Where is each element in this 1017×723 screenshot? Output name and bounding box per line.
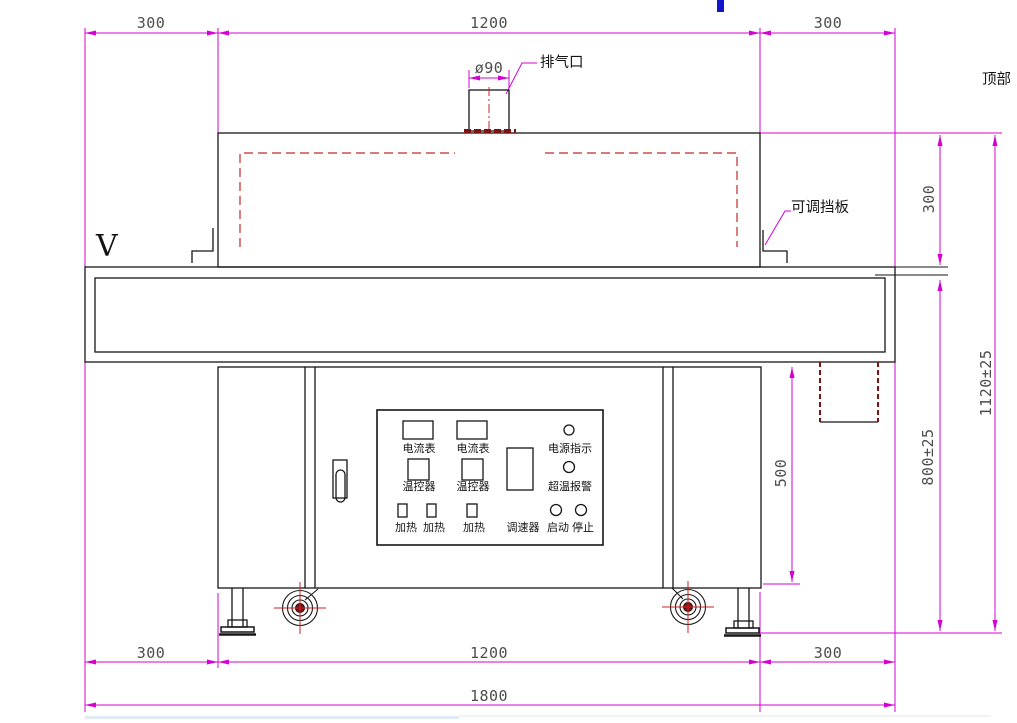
dim-top-left: 300: [137, 14, 166, 32]
overtemp-alarm-lamp: [564, 462, 575, 473]
left-foot-nut: [228, 620, 247, 627]
label-exhaust-port: 排气口: [540, 54, 584, 71]
right-caster-centerlines: [662, 581, 714, 633]
machine-structure: [85, 90, 948, 636]
label-temp-controller-1: 温控器: [403, 479, 436, 493]
dim-top-right: 300: [814, 14, 843, 32]
side-box-dashed-edges: [820, 362, 878, 422]
label-ammeter-2: 电流表: [457, 441, 490, 455]
panel-labels: 电流表 电流表 电源指示 温控器 温控器 超温报警 加热 加热 加热 调速器 启…: [395, 441, 594, 534]
label-heater-2: 加热: [423, 521, 445, 534]
leader-baffle: [765, 211, 791, 245]
label-power-indicator: 电源指示: [548, 441, 592, 455]
baffle-right: [763, 230, 787, 263]
blue-marker-top: [717, 0, 724, 12]
caster-crosshairs: [274, 581, 714, 634]
label-adjustable-baffle: 可调挡板: [791, 198, 849, 216]
start-button[interactable]: [551, 505, 562, 516]
cabinet-dividers: [305, 367, 673, 588]
label-stop: 停止: [572, 520, 594, 534]
left-caster-fork: [305, 589, 318, 600]
dim-total-height: 1120±25: [977, 350, 995, 417]
ammeter-1: [403, 421, 433, 439]
chamber-dash-left: [240, 153, 455, 247]
dim-work-height: 800±25: [919, 428, 937, 485]
cabinet: [218, 367, 761, 588]
right-foot-stem: [738, 588, 749, 628]
dim-top-center: 1200: [470, 14, 508, 32]
selection-band-bottom-left: [85, 716, 459, 719]
power-indicator-lamp: [564, 425, 574, 435]
left-foot-stem: [232, 588, 243, 627]
dim-bottom-total: 1800: [470, 687, 508, 705]
right-foot-pad: [726, 628, 759, 633]
conveyor-body: [85, 267, 895, 362]
speed-controller-unit[interactable]: [507, 448, 533, 490]
engineering-drawing-canvas: 300 1200 300 ø90 300 800±25 1120±25 500 …: [0, 0, 1017, 723]
label-speed-controller: 调速器: [507, 521, 540, 534]
left-foot-pad: [221, 627, 254, 632]
left-caster-centerlines: [274, 582, 326, 634]
dim-bottom-left: 300: [137, 644, 166, 662]
annotations: 排气口 可调挡板 顶部 V: [95, 54, 1011, 264]
label-heater-3: 加热: [463, 521, 485, 534]
label-start: 启动: [547, 521, 569, 534]
dim-cabinet-height: 500: [772, 459, 790, 488]
right-foot-nut: [734, 621, 753, 628]
dim-chimney-dia: ø90: [475, 59, 504, 77]
label-overtemp-alarm: 超温报警: [548, 479, 592, 493]
chamber-dash-right: [545, 153, 737, 247]
label-temp-controller-2: 温控器: [457, 479, 490, 493]
temp-controller-2[interactable]: [462, 459, 483, 480]
tunnel-oven-front-view: 300 1200 300 ø90 300 800±25 1120±25 500 …: [0, 0, 1017, 723]
heater-switch-3[interactable]: [467, 504, 477, 517]
temp-controller-1[interactable]: [408, 459, 429, 480]
label-top: 顶部: [982, 71, 1011, 88]
door-handle[interactable]: [336, 470, 345, 502]
stop-button[interactable]: [576, 505, 587, 516]
dim-bottom-right: 300: [814, 644, 843, 662]
dim-bottom-center: 1200: [470, 644, 508, 662]
dimension-lines: [85, 28, 1002, 712]
belt-ext-lines: [875, 267, 948, 275]
inner-chamber-dashed: [240, 153, 737, 247]
dimension-text: 300 1200 300 ø90 300 800±25 1120±25 500 …: [137, 14, 995, 705]
leader-exhaust: [506, 63, 537, 94]
heater-switch-2[interactable]: [427, 504, 436, 517]
label-view-v: V: [95, 229, 119, 264]
ammeter-2: [457, 421, 487, 439]
conveyor-belt: [95, 278, 885, 352]
heater-switch-1[interactable]: [398, 504, 407, 517]
label-ammeter-1: 电流表: [403, 441, 436, 455]
label-heater-1: 加热: [395, 521, 417, 534]
selection-band-bottom-right: [459, 715, 991, 717]
dim-hood-height: 300: [920, 185, 938, 214]
baffle-left: [192, 228, 213, 263]
